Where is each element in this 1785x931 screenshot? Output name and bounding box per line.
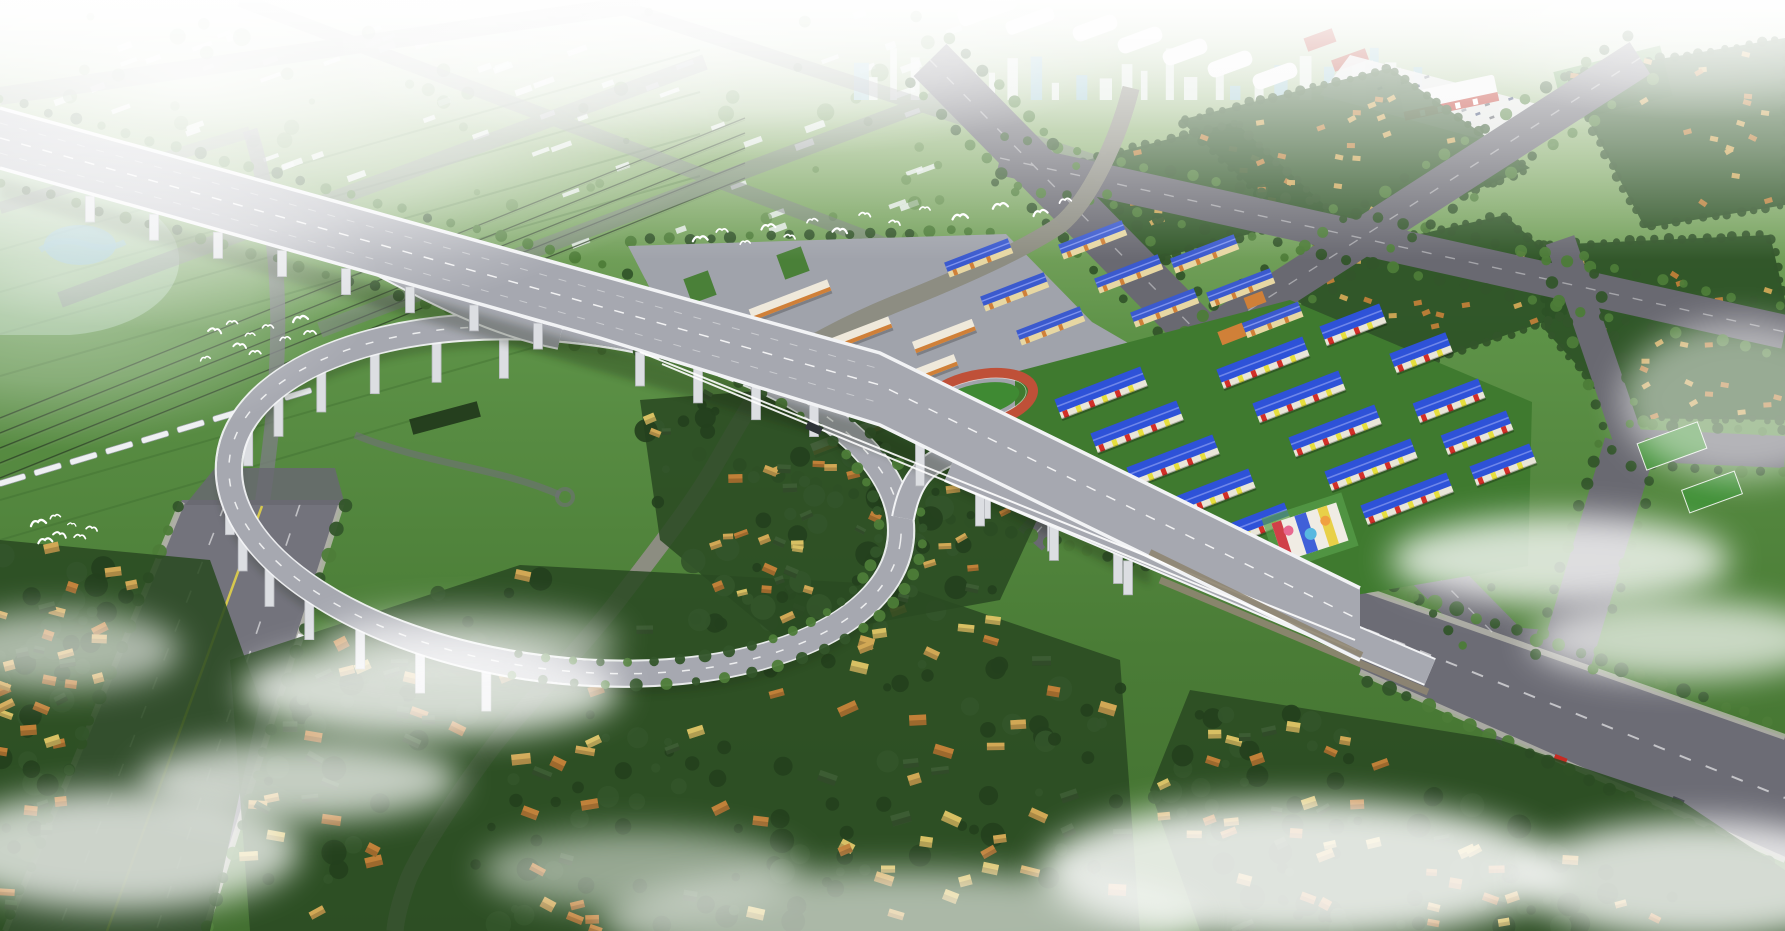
tree: [1035, 789, 1043, 797]
tree: [1424, 788, 1442, 806]
tree: [678, 415, 690, 427]
tree: [916, 507, 925, 516]
tree: [874, 534, 883, 543]
tree: [1680, 280, 1688, 288]
tree: [1567, 336, 1579, 348]
tree: [23, 587, 41, 605]
tree: [1414, 271, 1424, 281]
tree: [1555, 312, 1564, 321]
tree: [1610, 264, 1619, 273]
tree: [322, 548, 337, 563]
tree: [652, 496, 664, 508]
tree: [790, 447, 810, 467]
tree: [734, 824, 743, 833]
tree: [597, 786, 619, 808]
tree: [1246, 765, 1268, 787]
tree: [723, 645, 735, 657]
village-house: [585, 915, 599, 924]
village-house: [1032, 656, 1051, 666]
tree: [985, 659, 1006, 680]
tree: [862, 478, 871, 487]
tree: [1588, 456, 1600, 468]
tree: [1115, 683, 1126, 694]
tree: [840, 634, 851, 645]
tree: [1701, 286, 1711, 296]
tree: [870, 546, 881, 557]
aerial-rendering: [0, 0, 1785, 931]
tree: [1528, 295, 1537, 304]
tree: [118, 588, 134, 604]
tree: [1460, 793, 1484, 817]
tree: [664, 738, 672, 746]
tree: [1089, 266, 1098, 275]
tree: [1345, 270, 1356, 281]
tree: [651, 763, 660, 772]
tree: [877, 750, 899, 772]
tree: [685, 756, 699, 770]
tree: [715, 618, 728, 631]
tree: [1622, 318, 1630, 326]
tree: [321, 840, 346, 865]
tree: [1471, 613, 1482, 624]
tree: [1329, 285, 1338, 294]
tree: [1617, 353, 1628, 364]
tree: [23, 760, 41, 778]
tree: [1640, 498, 1651, 509]
tree: [615, 762, 632, 779]
tree: [823, 608, 831, 616]
tree: [772, 660, 784, 672]
tree: [598, 260, 606, 268]
pier: [534, 323, 543, 349]
tree: [1542, 607, 1552, 617]
tree: [681, 549, 706, 574]
tree: [717, 741, 731, 755]
pier: [1050, 526, 1059, 560]
village-house: [723, 533, 733, 539]
tree: [747, 641, 757, 651]
tree: [675, 654, 685, 664]
tree: [918, 539, 927, 548]
tree: [504, 588, 514, 598]
tree: [700, 424, 715, 439]
tree: [806, 617, 816, 627]
tree: [819, 644, 830, 655]
tree: [630, 678, 643, 691]
tree: [345, 836, 363, 854]
tree: [1087, 717, 1102, 732]
tree: [596, 658, 604, 666]
tree: [699, 650, 712, 663]
tree: [1422, 698, 1436, 712]
tree: [1777, 277, 1784, 284]
village-house: [777, 464, 791, 473]
scene-canvas: [0, 0, 1785, 931]
tree: [1676, 683, 1691, 698]
tree: [876, 797, 891, 812]
tree: [1739, 706, 1750, 717]
tree: [907, 569, 919, 581]
tree: [661, 678, 673, 690]
tree: [867, 490, 879, 502]
village-house: [1208, 730, 1221, 739]
tree: [1282, 705, 1301, 724]
tree: [857, 572, 868, 583]
tree: [874, 519, 885, 530]
tree: [887, 597, 899, 609]
tree: [827, 491, 844, 508]
tree: [692, 677, 700, 685]
village-house: [993, 834, 1007, 844]
tree: [1520, 326, 1528, 334]
tree: [788, 626, 798, 636]
tree: [1449, 601, 1464, 616]
tree: [1387, 261, 1399, 273]
tree: [1511, 624, 1522, 635]
tree: [1080, 704, 1093, 717]
tree: [891, 675, 908, 692]
village-house: [938, 543, 951, 550]
tree: [1482, 338, 1491, 347]
tree: [756, 513, 772, 529]
tree: [719, 672, 730, 683]
tree: [1308, 295, 1317, 304]
tree: [865, 559, 877, 571]
village-house: [909, 714, 927, 726]
tree: [1599, 422, 1608, 431]
tree: [1463, 718, 1477, 732]
pier: [432, 338, 441, 382]
village-house: [1389, 313, 1397, 318]
village-house: [903, 758, 919, 769]
tree: [1557, 343, 1565, 351]
village-house: [1239, 733, 1251, 741]
tree: [1583, 379, 1594, 390]
tree: [551, 797, 561, 807]
tree: [849, 586, 858, 595]
tree: [784, 508, 796, 520]
tree: [1218, 707, 1235, 724]
tree: [769, 634, 778, 643]
tree: [752, 563, 761, 572]
tree: [1327, 772, 1345, 790]
tree: [1575, 361, 1585, 371]
tree: [944, 576, 968, 600]
tree: [1240, 778, 1249, 787]
tree: [921, 669, 933, 681]
tree: [1504, 291, 1515, 302]
tree: [507, 773, 519, 785]
village-house: [1010, 719, 1026, 729]
tree: [852, 462, 864, 474]
village-house: [812, 461, 824, 468]
tree: [339, 499, 353, 513]
tree: [777, 591, 789, 603]
tree: [988, 585, 997, 594]
tree: [1109, 794, 1123, 808]
tree: [883, 683, 891, 691]
mist-blob: [1390, 515, 1730, 605]
tree: [821, 654, 836, 669]
tree: [918, 660, 927, 669]
tree: [1698, 692, 1709, 703]
tree: [323, 874, 333, 884]
tree: [622, 269, 633, 280]
tree: [173, 501, 184, 512]
tree: [1526, 905, 1536, 915]
tree: [627, 727, 648, 748]
tree: [803, 485, 825, 507]
tree: [969, 825, 979, 835]
tree: [572, 782, 584, 794]
tree: [509, 794, 522, 807]
tree: [1343, 753, 1354, 764]
village-house: [967, 564, 979, 571]
tree: [826, 797, 840, 811]
village-house: [20, 724, 37, 735]
tree: [799, 476, 810, 487]
tree: [873, 506, 882, 515]
village-house: [511, 753, 531, 766]
tree: [1361, 676, 1373, 688]
tree: [711, 407, 720, 416]
tree: [64, 765, 75, 776]
tree: [1626, 461, 1637, 472]
tree: [751, 595, 776, 620]
tree: [431, 586, 446, 601]
tree: [623, 658, 632, 667]
tree: [1197, 310, 1209, 322]
tree: [961, 697, 979, 715]
tree: [1607, 445, 1617, 455]
tree: [1774, 263, 1783, 272]
village-house: [919, 836, 933, 848]
tree: [1594, 440, 1602, 448]
tree: [1596, 291, 1608, 303]
tree: [1591, 399, 1601, 409]
tree: [774, 757, 793, 776]
tree: [66, 562, 87, 583]
tree: [1508, 331, 1516, 339]
tree: [1632, 270, 1641, 279]
tree: [874, 610, 886, 622]
tree: [913, 554, 924, 565]
tree: [1082, 751, 1095, 764]
tree: [1657, 274, 1668, 285]
tree: [1460, 280, 1470, 290]
tree: [671, 778, 687, 794]
village-house: [636, 625, 653, 634]
village-house: [783, 483, 798, 492]
village-house: [1286, 721, 1301, 733]
tree: [1195, 710, 1205, 720]
tree: [1565, 354, 1572, 361]
tree: [1119, 294, 1128, 303]
tree: [967, 511, 975, 519]
pier: [1124, 561, 1133, 595]
tree: [1644, 476, 1654, 486]
tree: [529, 567, 552, 590]
tree: [1581, 478, 1593, 490]
tree: [1443, 625, 1453, 635]
tree: [1609, 331, 1620, 342]
tree: [1427, 595, 1442, 610]
tree: [1221, 760, 1229, 768]
tree: [163, 525, 173, 535]
tree: [796, 652, 808, 664]
tree: [1172, 745, 1194, 767]
village-house: [662, 428, 671, 435]
tree: [1726, 293, 1736, 303]
tree: [1401, 691, 1411, 701]
village-house: [1046, 685, 1060, 697]
tree: [1553, 295, 1565, 307]
pier: [470, 305, 479, 331]
tree: [918, 524, 927, 533]
tree: [1490, 618, 1500, 628]
tree: [1459, 641, 1467, 649]
tree: [858, 623, 868, 633]
tree: [1382, 681, 1397, 696]
tree: [75, 726, 90, 741]
tree: [1470, 340, 1479, 349]
village-house: [761, 585, 772, 593]
tree: [37, 774, 59, 796]
tree: [979, 786, 998, 805]
tree: [1721, 702, 1731, 712]
tree: [1544, 316, 1553, 325]
tree: [1589, 269, 1599, 279]
tree: [1573, 500, 1584, 511]
tree: [770, 809, 789, 828]
tree: [1191, 778, 1210, 797]
tree: [688, 609, 711, 632]
tree: [1429, 609, 1437, 617]
tree: [601, 734, 610, 743]
tree: [470, 859, 480, 869]
tree: [841, 450, 851, 460]
tree: [649, 657, 659, 667]
tree: [748, 471, 760, 483]
tree: [1480, 283, 1491, 294]
tree: [1604, 313, 1613, 322]
tree: [1776, 301, 1785, 310]
village-house: [752, 815, 769, 826]
tree: [514, 905, 535, 926]
tree: [909, 844, 931, 866]
tree: [1546, 276, 1558, 288]
tree: [1762, 717, 1773, 728]
tree: [1575, 307, 1585, 317]
tree: [1407, 590, 1419, 602]
mist-blob: [320, 610, 620, 670]
tree: [1434, 275, 1445, 286]
village-house: [987, 743, 1005, 751]
tree: [329, 522, 344, 537]
pier: [636, 352, 645, 386]
tree: [837, 597, 846, 606]
village-house: [824, 464, 837, 471]
tree: [980, 722, 996, 738]
tree: [1301, 711, 1322, 732]
tree: [1307, 740, 1318, 751]
tree: [840, 826, 854, 840]
tree: [1048, 733, 1061, 746]
tree: [1458, 346, 1467, 355]
tree: [570, 810, 589, 829]
tree: [629, 793, 646, 810]
village-house: [728, 474, 742, 483]
tree: [898, 583, 910, 595]
tree: [662, 465, 670, 473]
village-house: [4, 900, 17, 911]
tree: [709, 770, 726, 787]
tree: [746, 667, 757, 678]
tree: [1563, 317, 1574, 328]
tree: [1492, 331, 1502, 341]
tree: [1442, 712, 1453, 723]
tree: [1647, 322, 1657, 332]
tree: [931, 488, 939, 496]
tree: [487, 823, 495, 831]
tree: [1749, 296, 1758, 305]
tree: [1548, 332, 1555, 339]
